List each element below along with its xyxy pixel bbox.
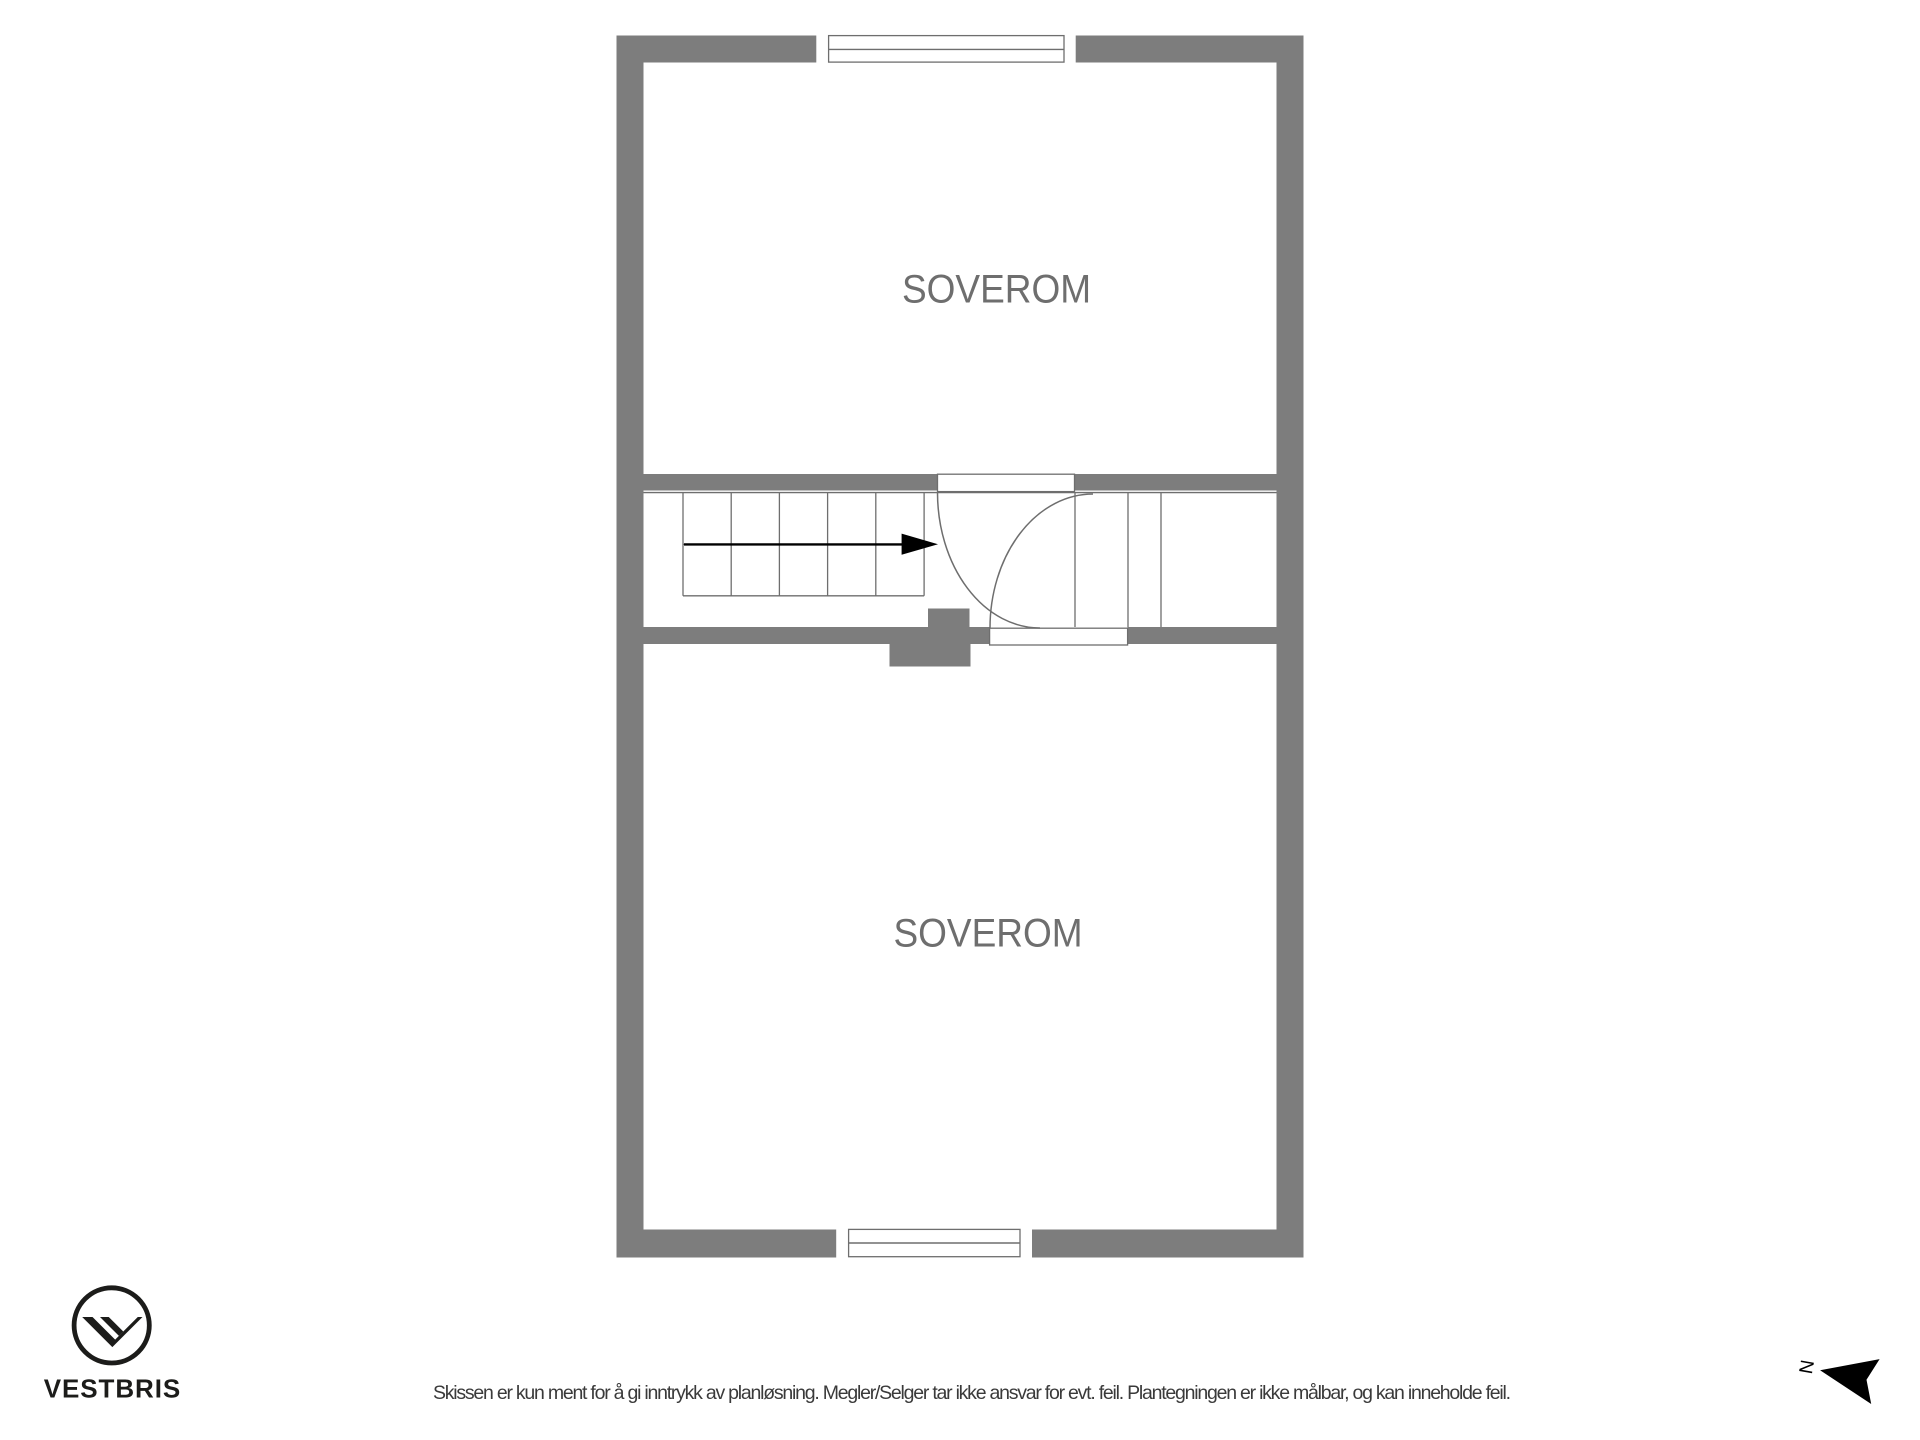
svg-text:SOVEROM: SOVEROM	[902, 267, 1091, 312]
svg-text:Skissen er kun ment for å gi i: Skissen er kun ment for å gi inntrykk av…	[433, 1382, 1511, 1404]
svg-text:SOVEROM: SOVEROM	[893, 911, 1082, 956]
svg-text:VESTBRIS: VESTBRIS	[44, 1374, 182, 1404]
